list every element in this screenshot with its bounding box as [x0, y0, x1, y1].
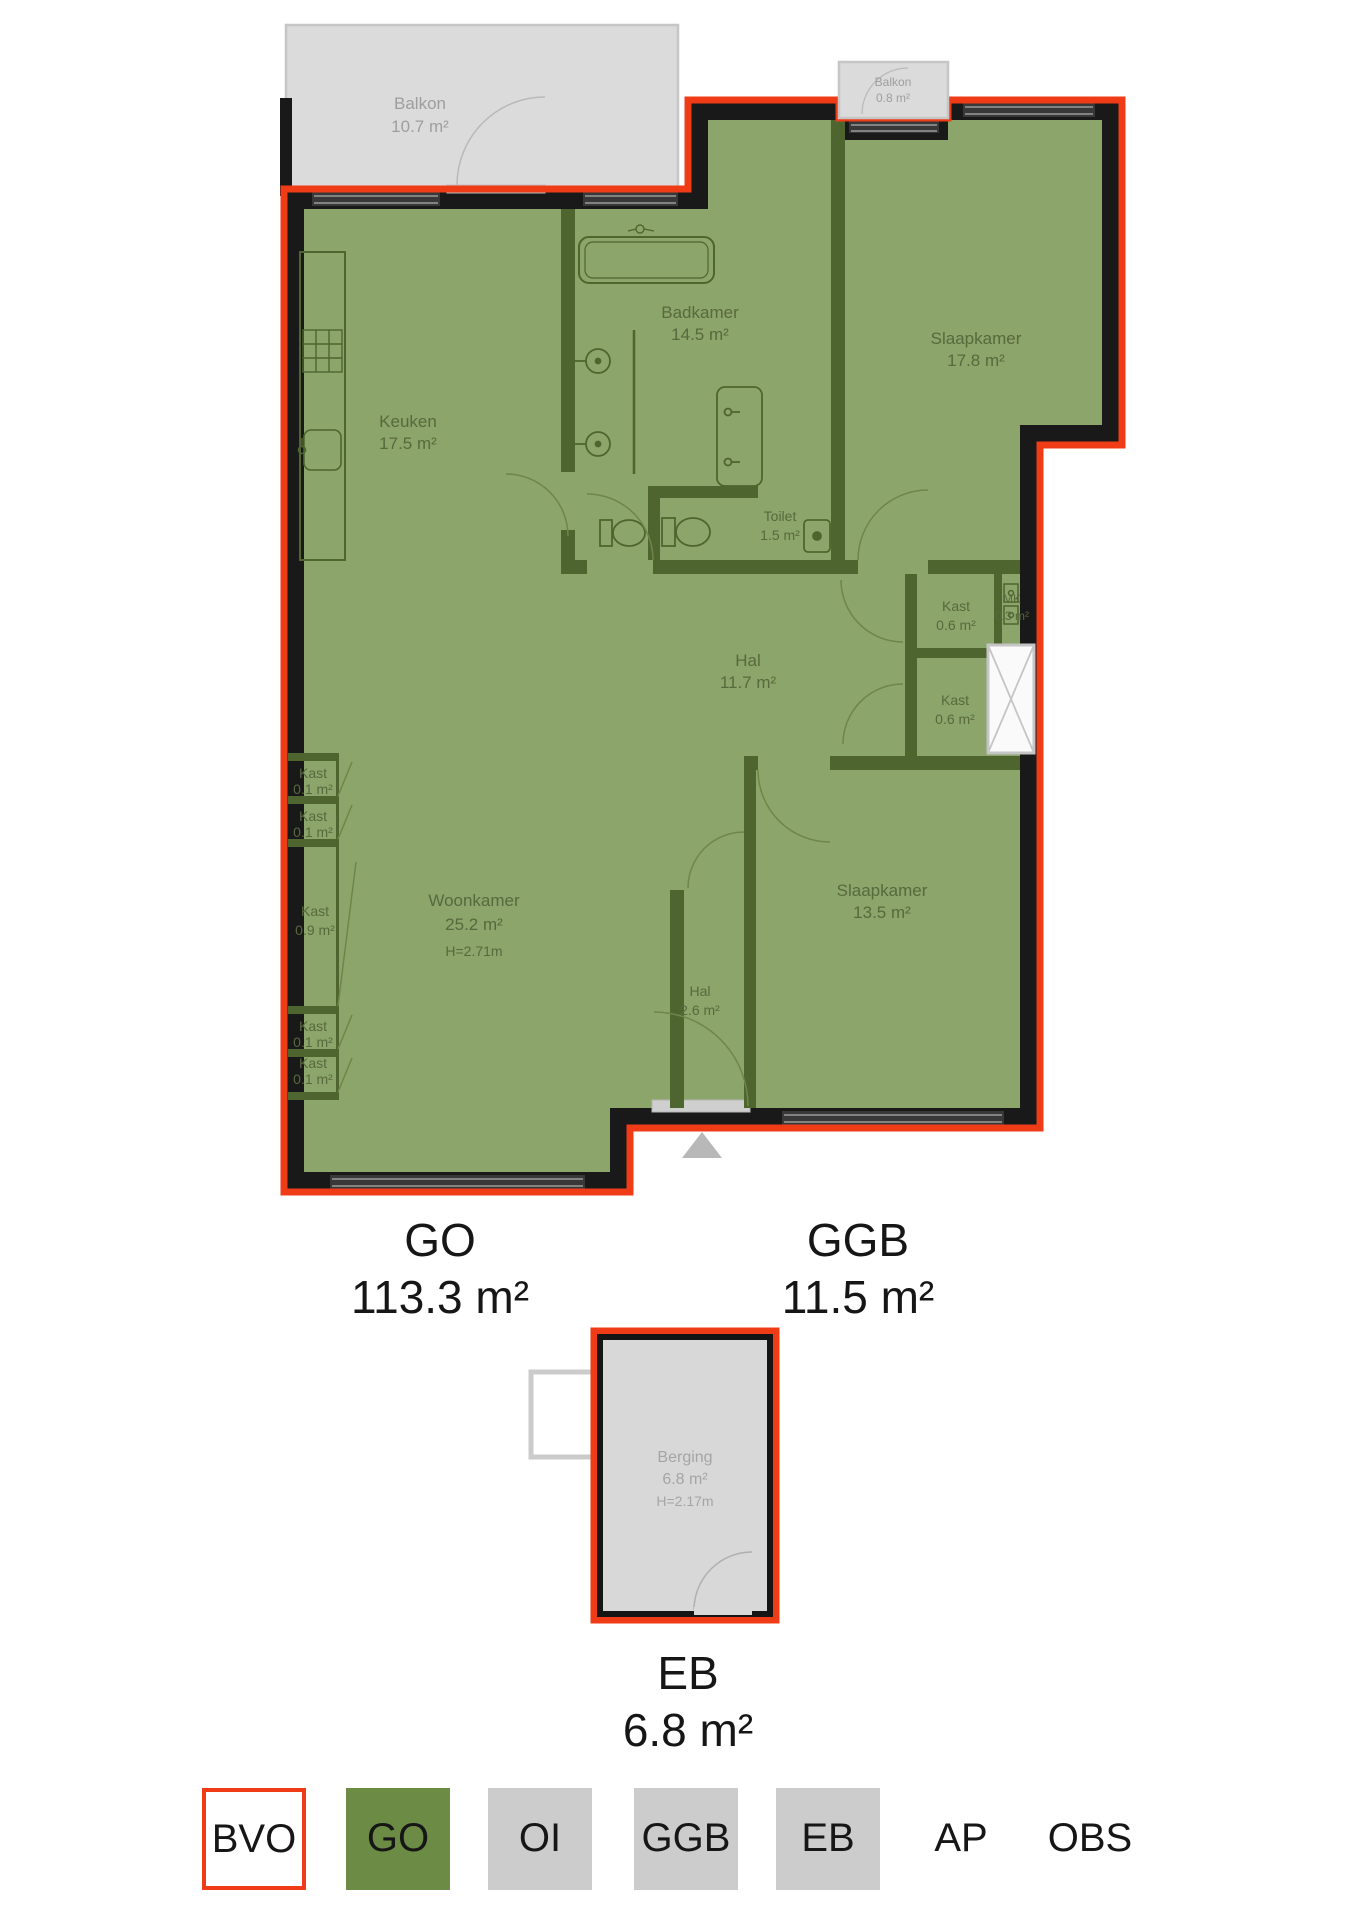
mk-name: MK: [1003, 592, 1021, 606]
window-top-badkamer: [583, 192, 678, 206]
kast3-name: Kast: [299, 765, 327, 781]
balcony-tl-area: 10.7 m²: [391, 117, 449, 136]
ggb-summary-area: 11.5 m²: [658, 1269, 1058, 1326]
kast7-area: 0.1 m²: [293, 1071, 333, 1087]
slaapkamer2-area: 13.5 m²: [853, 903, 911, 922]
woonkamer-name: Woonkamer: [428, 891, 520, 910]
go-summary-area: 113.3 m²: [240, 1269, 640, 1326]
kast6-area: 0.1 m²: [293, 1034, 333, 1050]
kast7-name: Kast: [299, 1055, 327, 1071]
toilet-name: Toilet: [764, 508, 797, 524]
badkamer-name: Badkamer: [661, 303, 739, 322]
go-summary-label: GO: [240, 1212, 640, 1269]
entrance-door: [652, 1100, 750, 1112]
balcony-tl-name: Balkon: [394, 94, 446, 113]
window-under-balcony-tr: [849, 121, 939, 133]
wall-slaapkamer2-left: [744, 756, 756, 1108]
kast4-area: 0.1 m²: [293, 824, 333, 840]
balcony-top-right: Balkon 0.8 m²: [839, 62, 948, 118]
eb-summary-area: 6.8 m²: [488, 1702, 888, 1759]
slaapkamer2-name: Slaapkamer: [837, 881, 928, 900]
wall-slaapkamer1-left: [831, 120, 845, 574]
hal1-name: Hal: [735, 651, 761, 670]
legend-item-eb: EB: [776, 1788, 880, 1890]
kast2-name: Kast: [941, 692, 969, 708]
hal2-area: 2.6 m²: [680, 1002, 720, 1018]
slaapkamer1-name: Slaapkamer: [931, 329, 1022, 348]
window-bottom-left: [330, 1175, 585, 1189]
legend-item-bvo: BVO: [202, 1788, 306, 1890]
eb-summary-label: EB: [488, 1645, 888, 1702]
kast6-name: Kast: [299, 1018, 327, 1034]
berging-height: H=2.17m: [656, 1493, 713, 1509]
woonkamer-area: 25.2 m²: [445, 915, 503, 934]
wall-toilet-top: [648, 486, 758, 498]
hal1-area: 11.7 m²: [720, 673, 777, 692]
badkamer-area: 14.5 m²: [671, 325, 729, 344]
berging-name: Berging: [657, 1449, 712, 1466]
kast3-area: 0.1 m²: [293, 781, 333, 797]
kast1-name: Kast: [942, 598, 970, 614]
balcony-tr-name: Balkon: [875, 75, 912, 89]
legend-item-obs: OBS: [1035, 1788, 1145, 1890]
woonkamer-height: H=2.71m: [445, 943, 502, 959]
kast5-area: 0.9 m²: [295, 922, 335, 938]
window-top-slaapkamer: [963, 103, 1095, 117]
legend-item-ap: AP: [906, 1788, 1016, 1890]
legend-item-ggb: GGB: [634, 1788, 738, 1890]
wall-woonkamer-hal2: [670, 890, 684, 1108]
door-gap-slaapkamer2: [758, 756, 830, 770]
kast1-area: 0.6 m²: [936, 617, 976, 633]
floorplan-page: Balkon 10.7 m²: [0, 0, 1358, 1920]
slaapkamer1-area: 17.8 m²: [947, 351, 1005, 370]
kast2-area: 0.6 m²: [935, 711, 975, 727]
hal2-name: Hal: [689, 983, 710, 999]
legend-item-go: GO: [346, 1788, 450, 1890]
kast-wall-3: [288, 839, 338, 847]
berging-area: 6.8 m²: [662, 1471, 708, 1488]
toilet-area: 1.5 m²: [760, 527, 800, 543]
mk-area: 0.3 m²: [995, 609, 1029, 623]
wall-kast-left: [905, 574, 917, 756]
shaft: [988, 645, 1034, 753]
ggb-summary: GGB 11.5 m²: [658, 1212, 1058, 1326]
legend-item-oi: OI: [488, 1788, 592, 1890]
door-gap-badkamer: [587, 560, 653, 574]
keuken-area: 17.5 m²: [379, 434, 437, 453]
keuken-name: Keuken: [379, 412, 437, 431]
go-summary: GO 113.3 m²: [240, 1212, 640, 1326]
kast-wall-4: [288, 1006, 338, 1014]
door-gap-slaapkamer1: [858, 560, 928, 574]
balcony-top-left: Balkon 10.7 m²: [280, 25, 678, 196]
kast5-name: Kast: [301, 903, 329, 919]
wall-keuken-badkamer: [561, 209, 575, 472]
adjacent-berging-outline: [531, 1372, 598, 1457]
berging-unit: Berging 6.8 m² H=2.17m: [531, 1331, 776, 1620]
entrance-arrow-icon: [682, 1132, 722, 1158]
kast4-name: Kast: [299, 808, 327, 824]
kast-wall-1: [288, 753, 338, 761]
floorplan-drawing: Balkon 10.7 m²: [0, 0, 1358, 1920]
eb-summary: EB 6.8 m²: [488, 1645, 888, 1759]
window-bottom-right: [782, 1111, 1004, 1125]
balcony-tr-area: 0.8 m²: [876, 91, 910, 105]
window-top-keuken: [312, 192, 440, 206]
balcony-tl-wall-stub: [280, 98, 292, 196]
kast-wall-2: [288, 796, 338, 804]
ggb-summary-label: GGB: [658, 1212, 1058, 1269]
kast-wall-6: [288, 1092, 338, 1100]
balcony-tl-floor: [286, 25, 678, 196]
